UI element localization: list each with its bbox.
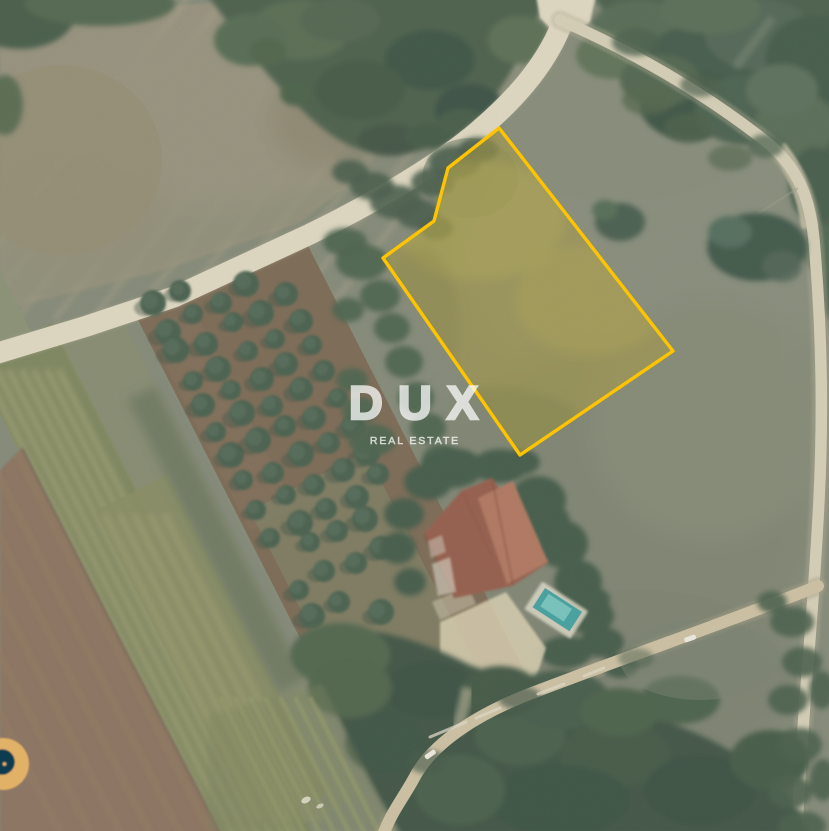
svg-text:DUX: DUX (349, 376, 493, 429)
svg-text:REAL ESTATE: REAL ESTATE (370, 435, 460, 447)
